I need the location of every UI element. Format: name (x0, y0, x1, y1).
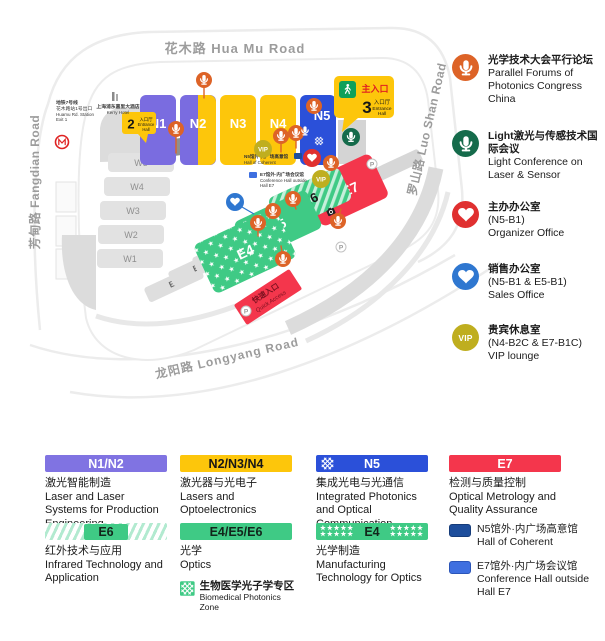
metro-note-line2: 花木路站1号出口 (56, 105, 92, 112)
legend-vip-lounge: VIP 贵宾休息室 (N4-B2C & E7-B1C) VIP lounge (452, 324, 602, 363)
metro-icon (56, 136, 69, 149)
microphone-icon (452, 130, 479, 157)
legend-e6: E6 红外技术与应用 Infrared Technology and Appli… (45, 523, 167, 586)
legend-cn: 光学 (180, 545, 300, 559)
road-label-fangdian: 芳甸路 Fangdian Road (27, 115, 42, 250)
legend-en: Optical Metrology and Quality Assurance (449, 491, 574, 518)
legend-n1-n2: N1/N2 激光智能制造 Laser and Laser Systems for… (45, 455, 167, 531)
legend-cn: 光学制造 (316, 545, 436, 559)
star-pattern: ★★★★★★★★★★ (320, 526, 354, 538)
organizer-office-icon (303, 149, 321, 167)
legend-en: Infrared Technology and Application (45, 559, 167, 586)
road-label-huamu: 花木路 Hua Mu Road (165, 41, 306, 56)
coherent-note-en: Hall of Coherent (244, 160, 277, 165)
conference-note-en2: Hall E7 (260, 183, 275, 188)
entrance-main-hall-en2: Hall (378, 111, 386, 117)
hall-n2-label: N2 (190, 116, 207, 131)
legend-en: Lasers and Optoelectronics (180, 491, 300, 518)
legend-n5: N5 集成光电与光通信 Integrated Photonics and Opt… (316, 455, 436, 531)
legend-item-title-cn: 光学技术大会平行论坛 (488, 54, 602, 67)
svg-text:VIP: VIP (316, 178, 326, 184)
note-cn: N5馆外·内广场高意馆 (477, 523, 578, 535)
legend-item-title-cn: 销售办公室 (488, 263, 567, 276)
legend-e4-e5-e6: E4/E5/E6 光学 Optics 生物医学光子学专区 Biomedical … (180, 523, 300, 612)
svg-text:P: P (370, 161, 375, 168)
handshake-icon (452, 263, 479, 290)
hall-w3-label: W3 (126, 206, 140, 216)
vip-badge-e7: VIP (312, 170, 330, 188)
entrance-main-hall-cn: 入口厅 (374, 99, 391, 106)
note-en: Hall of Coherent (477, 536, 553, 548)
conference-swatch (449, 561, 471, 574)
hotel-note-cn: 上海浦东嘉里大酒店 (96, 103, 139, 110)
handshake-icon (452, 201, 479, 228)
microphone-icon (452, 54, 479, 81)
note-en: Conference Hall outside Hall E7 (477, 573, 589, 598)
legend-item-title-en: VIP lounge (488, 350, 582, 363)
hatch-icon (321, 457, 334, 473)
legend-sales-office: 销售办公室 (N5-B1 & E5-B1) Sales Office (452, 263, 602, 302)
badge-n5: N5 (316, 455, 428, 472)
legend-item-title-cn: Light激光与传感技术国际会议 (488, 130, 602, 156)
svg-text:P: P (244, 308, 249, 315)
entrance-2-hall-en2: Hall (142, 127, 149, 132)
biomedical-cn: 生物医学光子学专区 (200, 581, 300, 592)
entrance-main-number: 3 (362, 98, 371, 117)
note-conference-hall: E7馆外·内广场会议馆 Conference Hall outside Hall… (449, 560, 594, 599)
note-cn: E7馆外·内广场会议馆 (477, 560, 577, 572)
hall-w1-label: W1 (123, 254, 137, 264)
metro-note-line1: 地铁7号线 (56, 99, 78, 106)
badge-e4-e5-e6: E4/E5/E6 (180, 523, 292, 540)
legend-item-subtitle: (N5-B1) (488, 214, 564, 227)
legend-e4: ★★★★★★★★★★ E4 ★★★★★★★★★★ 光学制造 Manufactur… (316, 523, 436, 586)
legend-item-subtitle: (N4-B2C & E7-B1C) (488, 337, 582, 350)
legend-parallel-forums: 光学技术大会平行论坛 Parallel Forums of Photonics … (452, 54, 602, 106)
legend-item-title-en: Organizer Office (488, 227, 564, 240)
legend-e7: E7 检测与质量控制 Optical Metrology and Quality… (449, 455, 574, 518)
legend-light-conference: Light激光与传感技术国际会议 Light Conference on Las… (452, 130, 602, 182)
note-hall-of-coherent: N5馆外·内广场高意馆 Hall of Coherent (449, 523, 594, 549)
svg-text:P: P (339, 244, 344, 251)
biomedical-hatch-icon (180, 581, 195, 596)
svg-text:VIP: VIP (258, 148, 268, 154)
legend-en: Manufacturing Technology for Optics (316, 559, 436, 586)
biomedical-en: Biomedical Photonics Zone (200, 592, 300, 612)
legend-organizer-office: 主办办公室 (N5-B1) Organizer Office (452, 201, 602, 240)
metro-note-line4: Exit 1 (56, 117, 68, 122)
legend-item-title-en: Sales Office (488, 289, 567, 302)
hall-w2-label: W2 (124, 230, 138, 240)
legend-item-title-en: Parallel Forums of Photonics Congress Ch… (488, 67, 602, 106)
vip-badge-n4: VIP (254, 140, 272, 158)
badge-n2-n3-n4: N2/N3/N4 (180, 455, 292, 472)
badge-e4: ★★★★★★★★★★ E4 ★★★★★★★★★★ (316, 523, 428, 540)
legend-item-title-cn: 贵宾休息室 (488, 324, 582, 337)
legend-en: Optics (180, 559, 300, 573)
legend-item-title-en: Light Conference on Laser & Sensor (488, 156, 602, 182)
hotel-note-en: Kerry Hotel (107, 110, 130, 115)
badge-n1-n2: N1/N2 (45, 455, 167, 472)
legend-item-title-cn: 主办办公室 (488, 201, 564, 214)
hall-w4-label: W4 (130, 182, 144, 192)
legend-cn: 激光器与光电子 (180, 477, 300, 491)
legend-cn: 检测与质量控制 (449, 477, 574, 491)
legend-biomedical-zone: 生物医学光子学专区 Biomedical Photonics Zone (180, 581, 300, 612)
light-conference-mic-icon (342, 128, 360, 146)
entrance-main-label: 主入口 (361, 83, 388, 94)
legend-cn: 红外技术与应用 (45, 545, 167, 559)
coherent-swatch (449, 524, 471, 537)
star-pattern: ★★★★★★★★★★ (390, 526, 424, 538)
vip-icon: VIP (452, 324, 479, 351)
vip-icon-label: VIP (458, 333, 472, 343)
legend-cn: 集成光电与光通信 (316, 477, 436, 491)
badge-e6: E6 (45, 523, 167, 540)
hall-n3-label: N3 (230, 116, 247, 131)
badge-e7: E7 (449, 455, 561, 472)
legend-cn: 激光智能制造 (45, 477, 167, 491)
legend-n2-n3-n4: N2/N3/N4 激光器与光电子 Lasers and Optoelectron… (180, 455, 300, 518)
sales-office-icon (226, 193, 244, 211)
entrance-2-number: 2 (127, 117, 134, 132)
legend-item-subtitle: (N5-B1 & E5-B1) (488, 276, 567, 289)
conference-note-cn: E7馆外·内广场会议馆 (260, 171, 304, 178)
